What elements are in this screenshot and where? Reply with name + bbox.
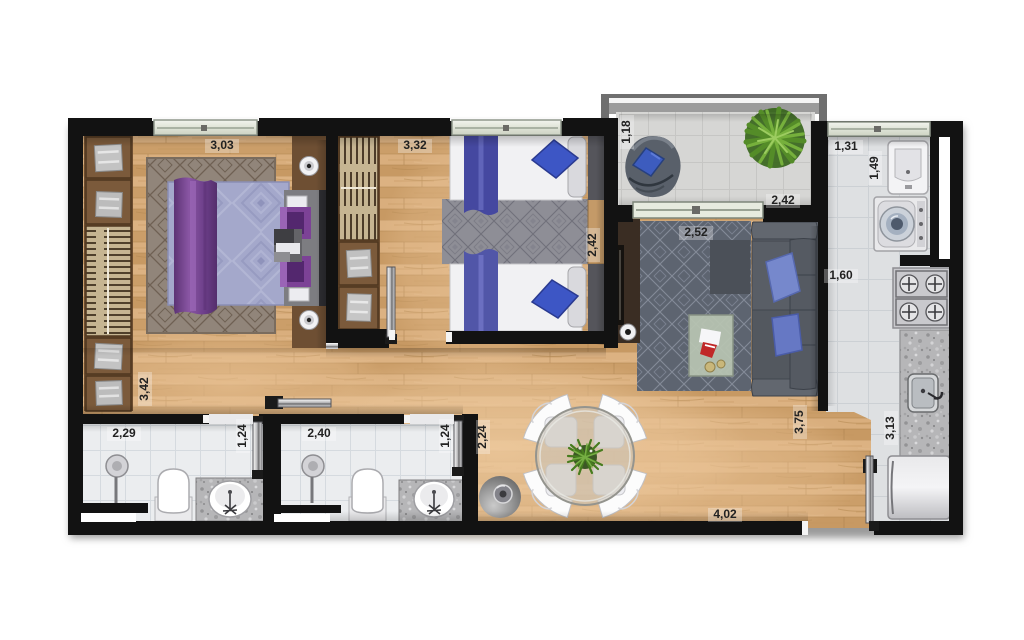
svg-text:2,24: 2,24: [475, 425, 489, 449]
svg-text:3,13: 3,13: [883, 416, 897, 440]
svg-text:1,24: 1,24: [438, 424, 452, 448]
svg-text:3,75: 3,75: [792, 410, 806, 434]
svg-text:1,24: 1,24: [235, 424, 249, 448]
svg-text:2,42: 2,42: [771, 193, 795, 207]
svg-text:2,52: 2,52: [684, 225, 708, 239]
svg-text:1,18: 1,18: [619, 120, 633, 144]
svg-text:1,60: 1,60: [829, 268, 853, 282]
svg-text:1,31: 1,31: [834, 139, 858, 153]
svg-text:1,49: 1,49: [867, 156, 881, 180]
svg-text:3,42: 3,42: [137, 377, 151, 401]
svg-text:4,02: 4,02: [713, 507, 737, 521]
svg-text:2,42: 2,42: [585, 233, 599, 257]
svg-text:3,03: 3,03: [210, 138, 234, 152]
svg-text:3,32: 3,32: [403, 138, 427, 152]
svg-text:2,29: 2,29: [112, 426, 136, 440]
svg-text:2,40: 2,40: [307, 426, 331, 440]
